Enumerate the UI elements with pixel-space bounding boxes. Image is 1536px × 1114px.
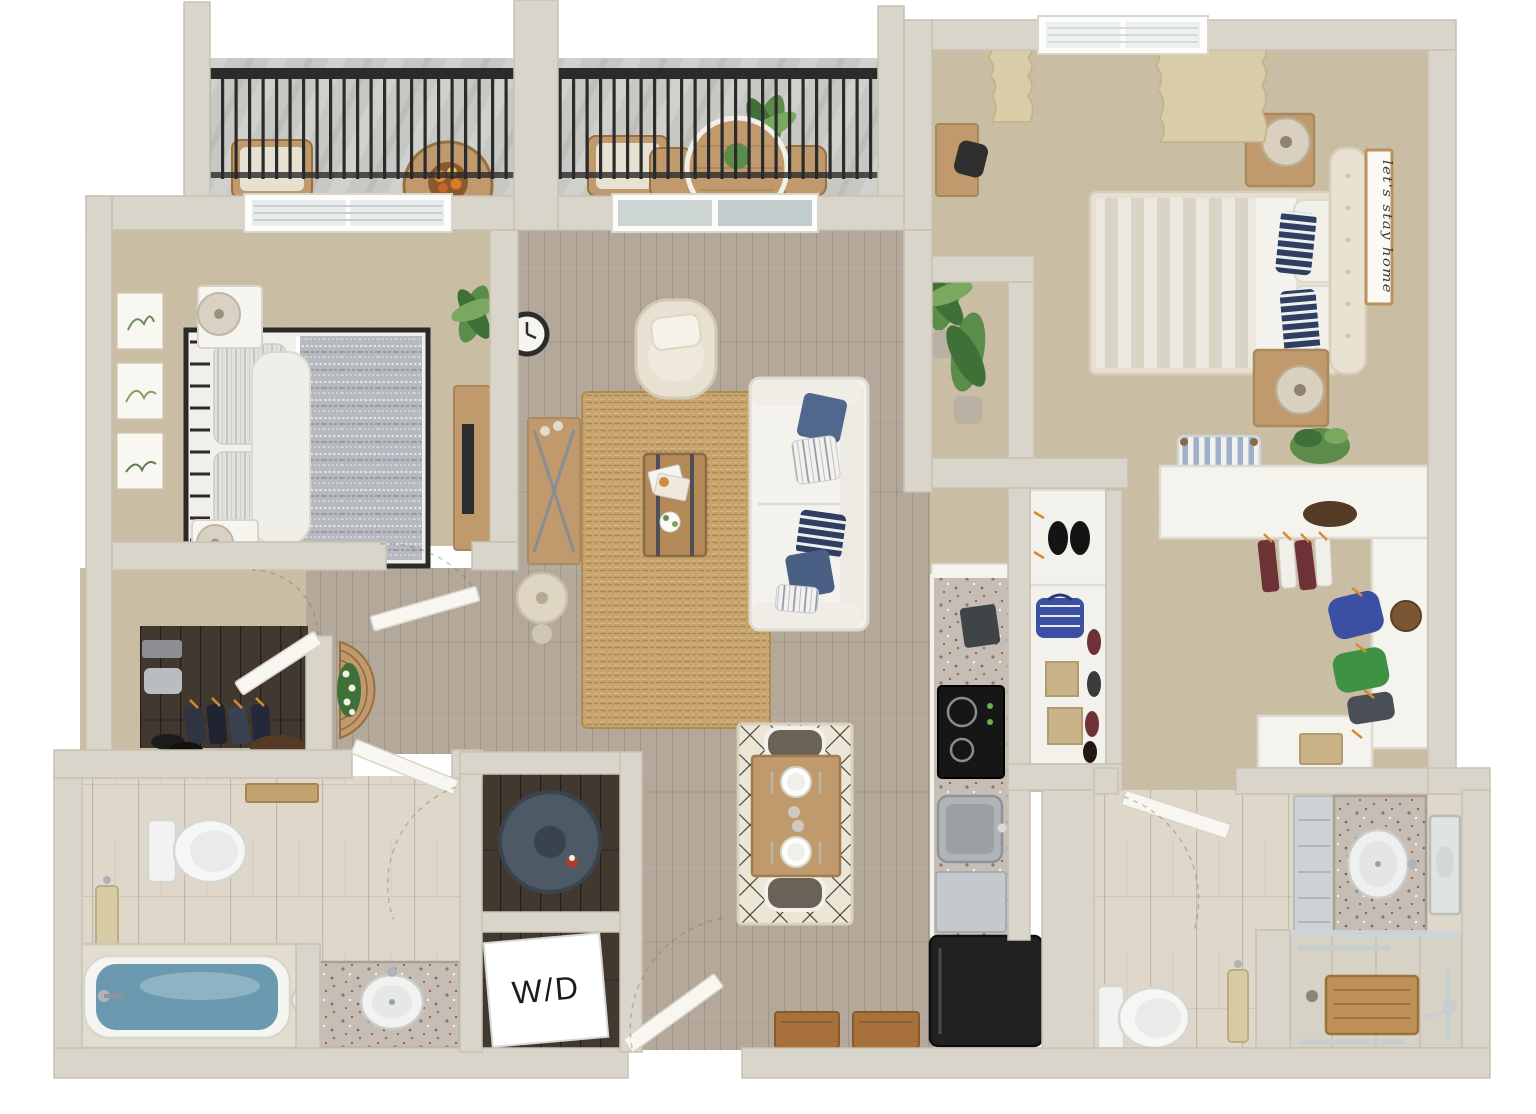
hallway-floor: [306, 568, 518, 754]
bedroom1-nightstand-top: [198, 286, 262, 348]
door-mat: [775, 1012, 839, 1048]
refrigerator: [930, 936, 1042, 1046]
navy-pillow: [796, 392, 848, 444]
roll-in-shower: [1290, 930, 1462, 1048]
coffee-table-trunk: [644, 454, 706, 556]
body-pillow: [252, 352, 310, 544]
washer-dryer-label: W/D: [510, 969, 581, 1011]
faucet: [1407, 859, 1417, 869]
floorplan-image: W/D: [0, 0, 1536, 1114]
tv: [462, 424, 474, 514]
bedroom2-nightstand-bottom: [1254, 350, 1328, 426]
floorplan-svg: W/D: [0, 0, 1536, 1114]
bedroom2-plant: [1290, 428, 1350, 464]
bedroom1-dresser: [454, 386, 490, 550]
bedroom1-window: [244, 194, 452, 232]
shoe-closet: [1030, 490, 1106, 764]
dishwasher: [936, 872, 1006, 932]
bathroom2-vanity: [1334, 792, 1426, 938]
dining-area: [738, 724, 852, 924]
chair-pillow: [650, 313, 702, 351]
dress-shoes: [1048, 521, 1068, 555]
shoe-box: [1046, 662, 1078, 696]
media-console: [528, 418, 580, 564]
tufted-headboard: [1330, 148, 1366, 374]
navy-striped-pillow: [1279, 289, 1320, 354]
shower-glass: [1290, 930, 1462, 937]
silver-bag: [144, 668, 182, 694]
sofa: [750, 378, 868, 630]
washer-dryer-unit: W/D: [484, 933, 609, 1047]
bathtub: [66, 944, 306, 1048]
faucet: [387, 967, 397, 977]
cooktop: [938, 686, 1004, 778]
leather-bag: [1303, 501, 1357, 527]
bathroom1-toilet: [148, 820, 246, 882]
kitchen-sink: [938, 796, 1007, 862]
dining-chair-bottom: [766, 876, 824, 910]
lumbar-pillow: [775, 584, 819, 614]
sliding-glass-door: [612, 194, 818, 232]
wood-shelf: [246, 784, 318, 802]
jute-rug: [582, 392, 770, 728]
round-basket: [1391, 601, 1421, 631]
shoe-box: [1048, 708, 1082, 744]
small-appliance: [959, 604, 1000, 649]
shower-drain: [1306, 990, 1318, 1002]
bedroom2-window: [1038, 16, 1208, 54]
bathroom1-vanity: [318, 962, 460, 1048]
closet-shelf-top: [1160, 466, 1428, 538]
linen-cabinet: [1294, 796, 1334, 938]
striped-pillow: [791, 435, 841, 485]
candlestick: [540, 426, 550, 436]
navy-striped-pillow: [1275, 210, 1317, 275]
shower-bench: [1326, 976, 1418, 1034]
striped-tote-bag: [1036, 598, 1084, 638]
faucet: [998, 824, 1007, 833]
bedroom1-wall-art: [116, 292, 164, 490]
shoes-on-shelf: [142, 640, 182, 658]
wall-sign: let's stay home: [1366, 150, 1394, 304]
accent-armchair: [636, 300, 716, 398]
hall-closet: [140, 626, 308, 761]
bathroom2-toilet: [1098, 986, 1189, 1050]
storage-box: [1300, 734, 1342, 764]
towel-on-wall: [1228, 960, 1248, 1042]
wall-sign-text: let's stay home: [1379, 160, 1394, 294]
door-mat: [853, 1012, 919, 1048]
